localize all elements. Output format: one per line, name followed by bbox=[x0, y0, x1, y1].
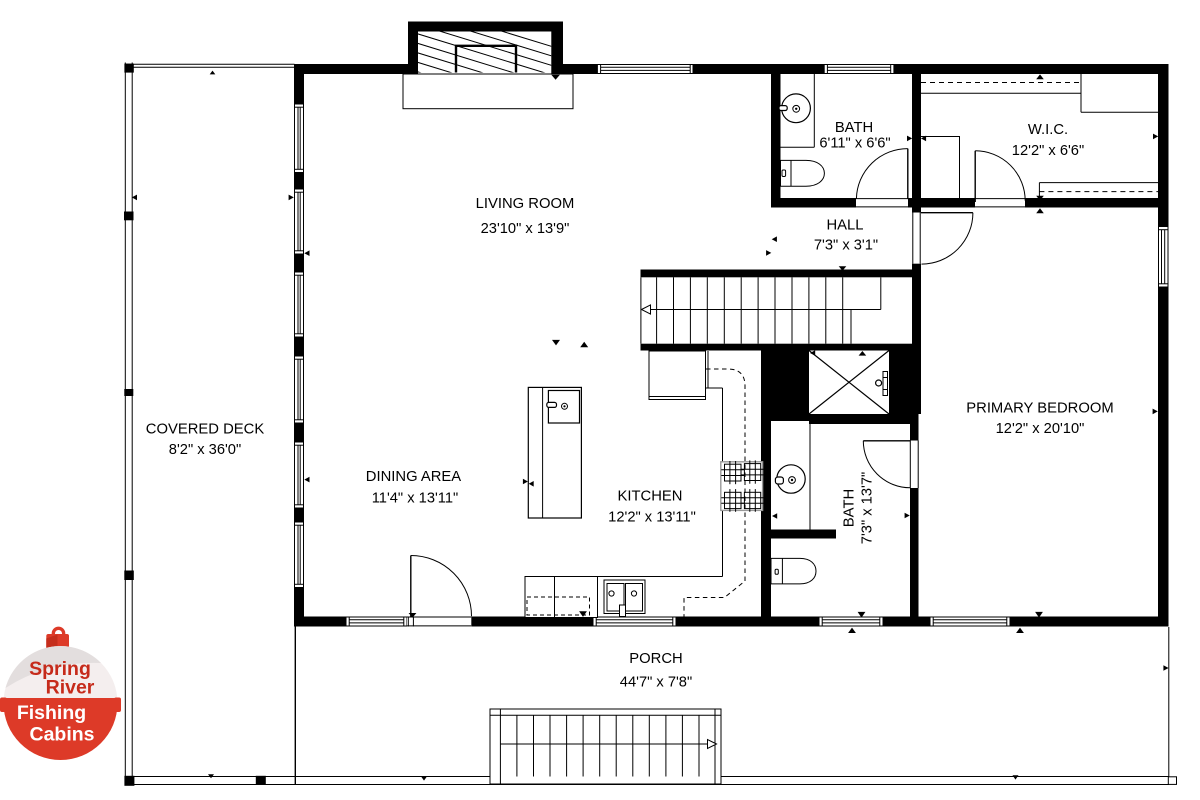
svg-text:COVERED DECK: COVERED DECK bbox=[146, 422, 265, 438]
svg-text:BATH: BATH bbox=[835, 120, 873, 136]
svg-text:LIVING ROOM: LIVING ROOM bbox=[476, 196, 575, 212]
svg-text:Cabins: Cabins bbox=[29, 724, 94, 746]
svg-text:12'2" x 13'11": 12'2" x 13'11" bbox=[608, 510, 696, 526]
svg-text:7'3" x 3'1": 7'3" x 3'1" bbox=[814, 238, 878, 254]
svg-text:KITCHEN: KITCHEN bbox=[618, 489, 683, 505]
svg-text:44'7" x 7'8": 44'7" x 7'8" bbox=[620, 675, 692, 691]
svg-text:HALL: HALL bbox=[826, 218, 863, 234]
svg-text:PRIMARY BEDROOM: PRIMARY BEDROOM bbox=[966, 401, 1113, 417]
svg-text:7'3" x 13'7": 7'3" x 13'7" bbox=[860, 472, 876, 544]
svg-text:BATH: BATH bbox=[842, 489, 858, 527]
svg-text:Fishing: Fishing bbox=[17, 702, 86, 724]
svg-text:23'10" x 13'9": 23'10" x 13'9" bbox=[481, 221, 570, 237]
svg-text:11'4" x 13'11": 11'4" x 13'11" bbox=[372, 491, 459, 507]
svg-text:PORCH: PORCH bbox=[629, 651, 682, 667]
svg-text:8'2" x 36'0": 8'2" x 36'0" bbox=[169, 442, 241, 458]
svg-text:W.I.C.: W.I.C. bbox=[1028, 122, 1068, 138]
svg-text:DINING AREA: DINING AREA bbox=[366, 469, 462, 485]
svg-text:River: River bbox=[46, 677, 95, 699]
svg-text:12'2" x 20'10": 12'2" x 20'10" bbox=[996, 421, 1085, 437]
svg-text:12'2" x 6'6": 12'2" x 6'6" bbox=[1012, 143, 1084, 159]
svg-text:6'11" x 6'6": 6'11" x 6'6" bbox=[819, 136, 890, 152]
